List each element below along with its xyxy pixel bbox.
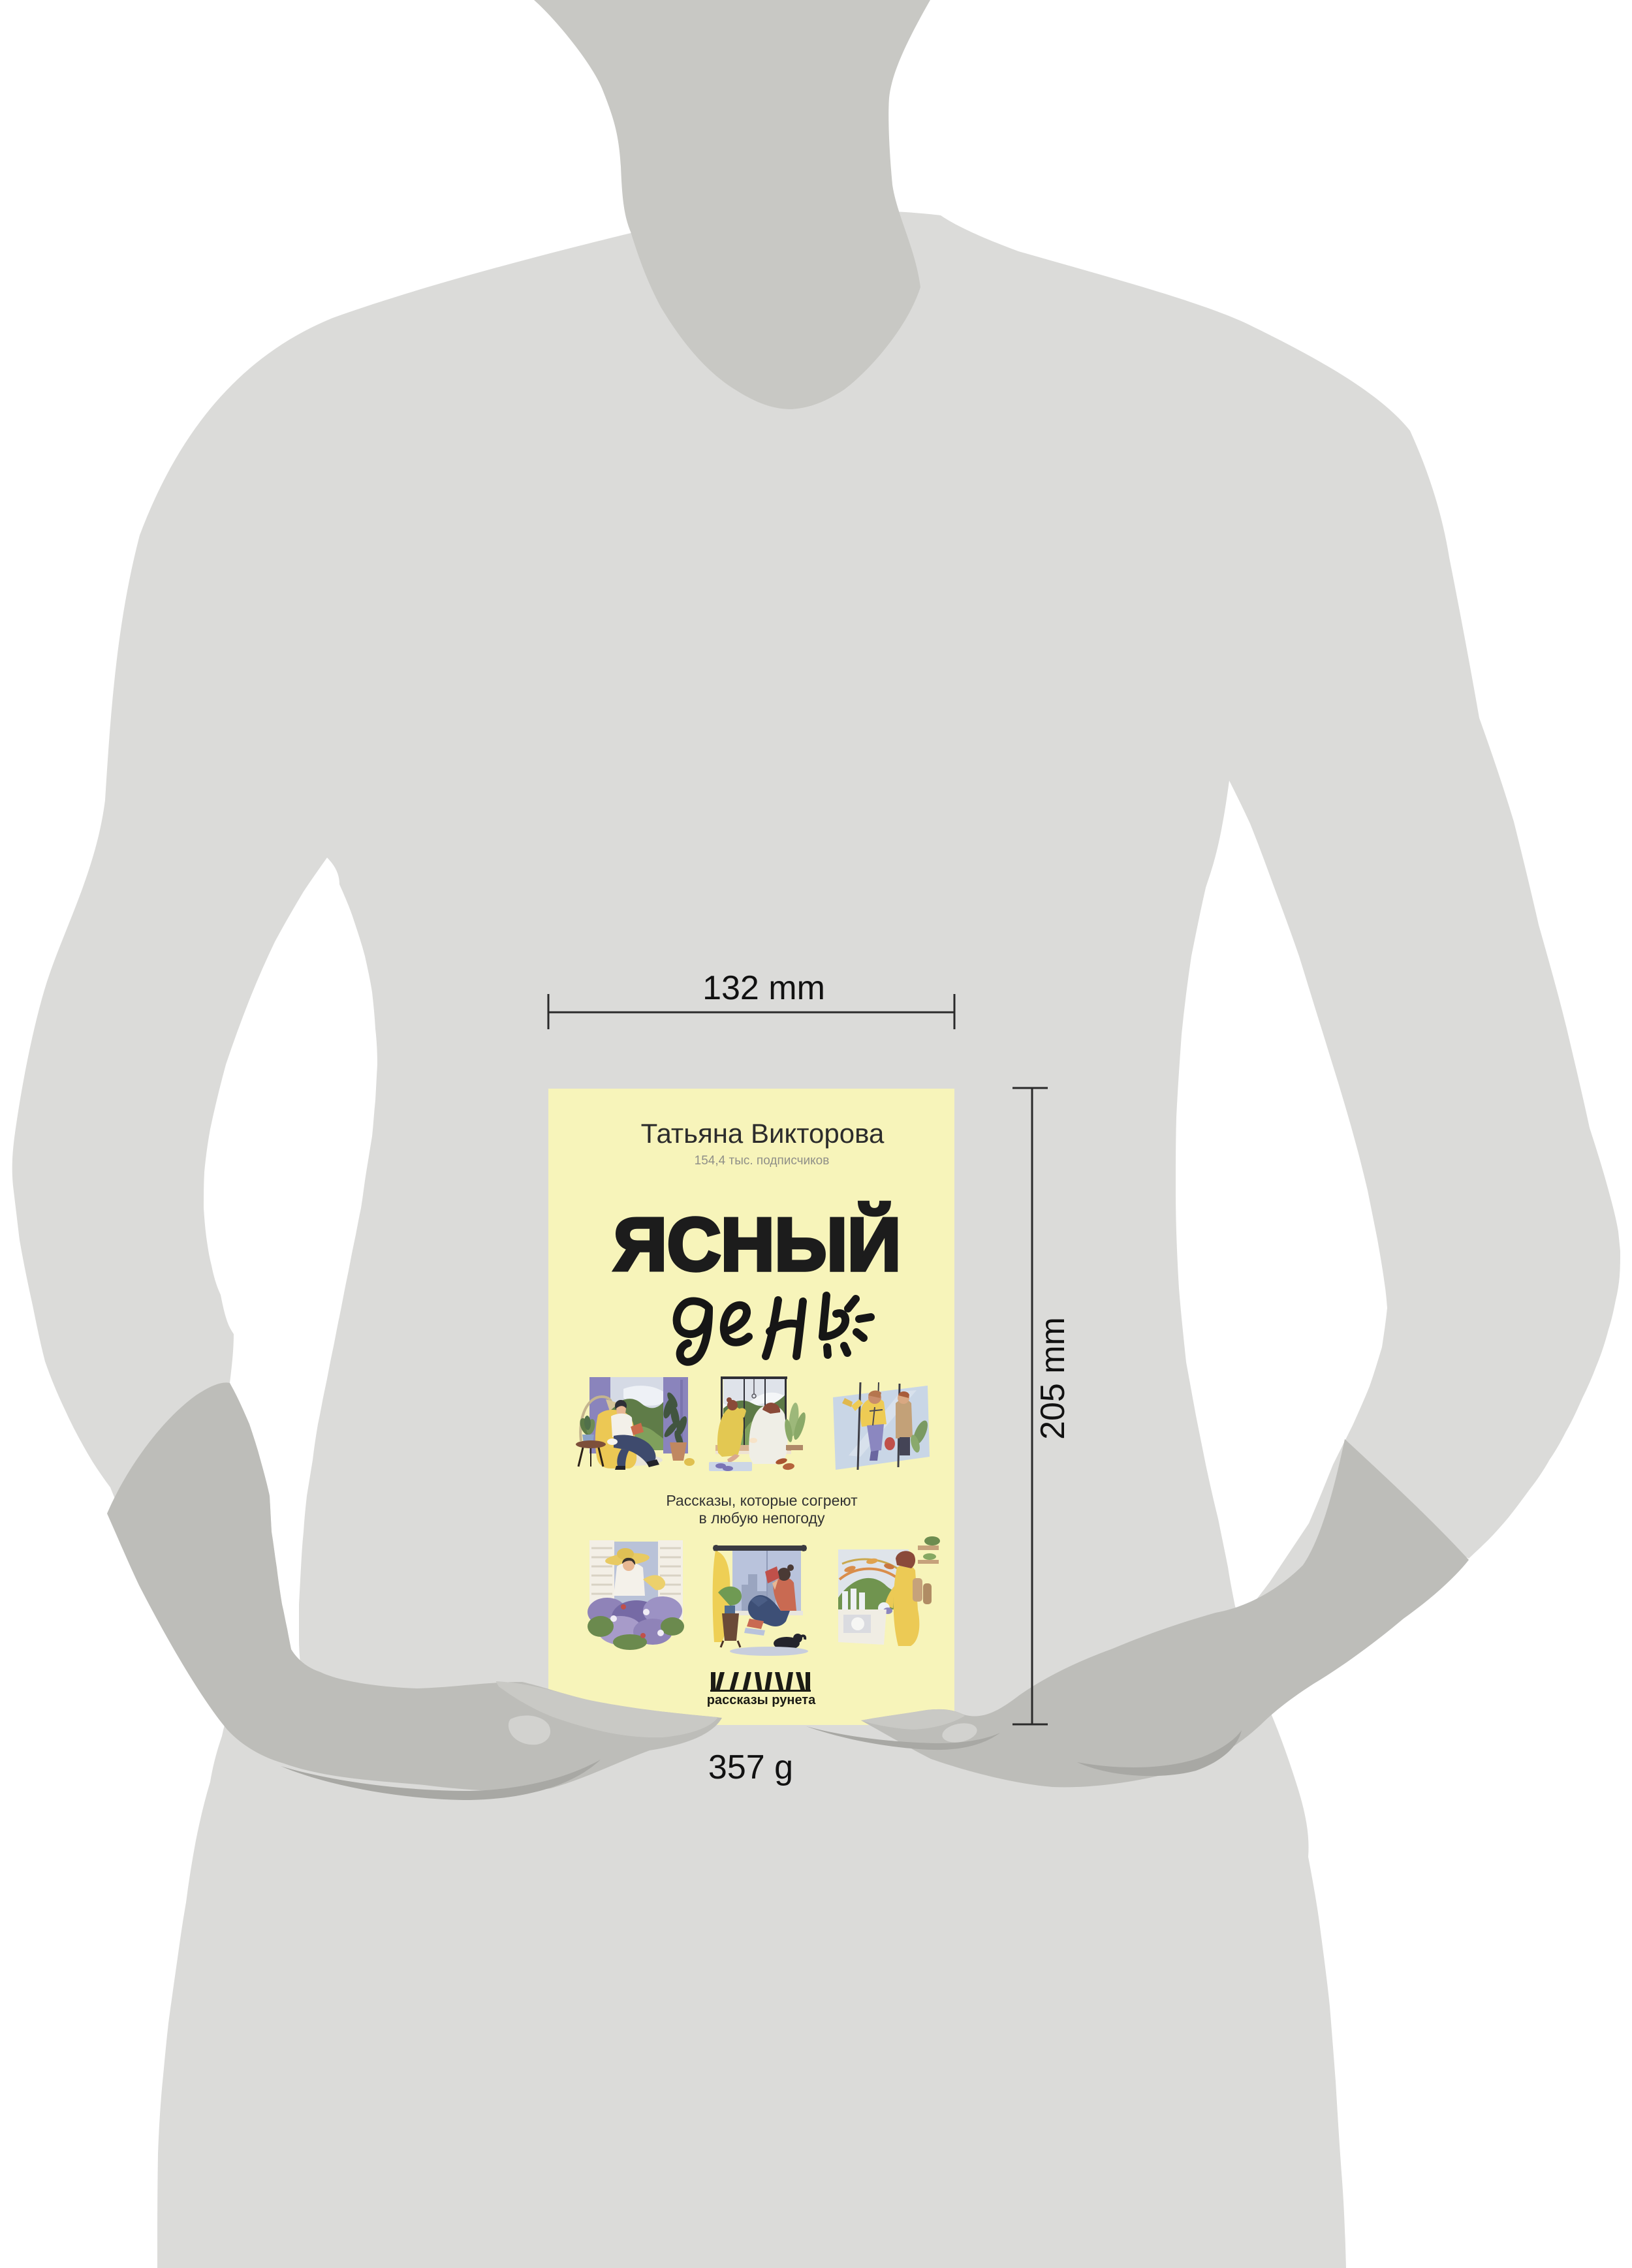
svg-text:154,4 тыс. подписчиков: 154,4 тыс. подписчиков bbox=[695, 1154, 830, 1168]
svg-text:205 mm: 205 mm bbox=[1034, 1317, 1072, 1440]
svg-text:Татьяна Викторова: Татьяна Викторова bbox=[641, 1118, 885, 1149]
svg-text:в любую непогоду: в любую непогоду bbox=[699, 1510, 825, 1527]
svg-text:ЯСНЫЙ: ЯСНЫЙ bbox=[614, 1203, 901, 1286]
svg-text:рассказы рунета: рассказы рунета bbox=[707, 1693, 816, 1707]
svg-text:132 mm: 132 mm bbox=[702, 969, 825, 1007]
svg-text:Рассказы, которые согреют: Рассказы, которые согреют bbox=[666, 1492, 858, 1509]
svg-text:357 g: 357 g bbox=[708, 1748, 793, 1786]
